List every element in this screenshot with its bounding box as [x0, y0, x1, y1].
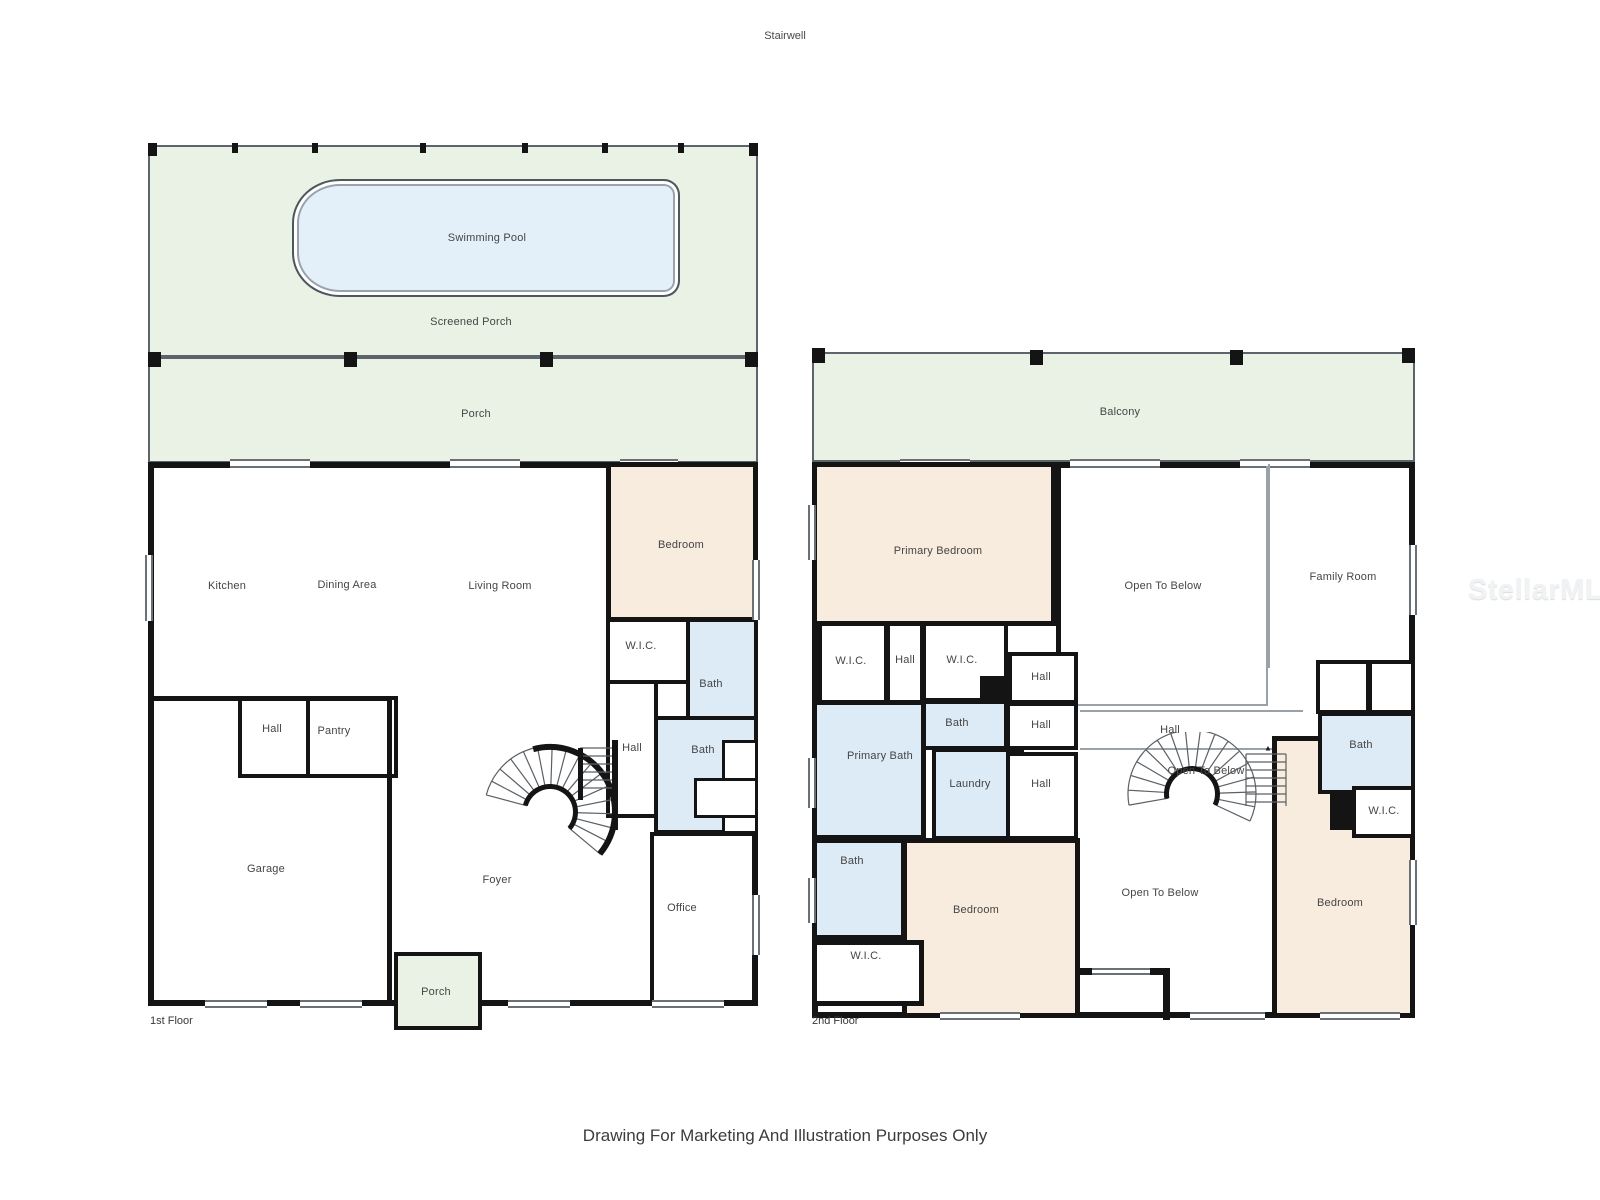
f1-hall-label: Hall [262, 723, 282, 735]
balcony-column [812, 348, 825, 363]
f2-hall-a-label: Hall [895, 654, 915, 666]
stair-wall [578, 748, 583, 800]
f1-pantry-label: Pantry [318, 725, 351, 737]
floorplan-canvas: Stairwell Swimming Pool Screened Porch P… [0, 0, 1600, 1200]
balcony-column [1402, 348, 1415, 363]
f2-bath-small-label: Bath [945, 717, 968, 729]
window [1320, 1012, 1400, 1020]
f2-wic-right-label: W.I.C. [1368, 805, 1399, 817]
f2-family-room-label: Family Room [1310, 571, 1377, 583]
f1-hall-bath-label: Hall [622, 742, 642, 754]
slider-opening [230, 459, 310, 468]
f1-toilet-compartment [694, 778, 758, 818]
f2-bath-left-label: Bath [840, 855, 863, 867]
f2-open-below-bottom-label: Open To Below [1121, 887, 1198, 899]
f1-garage-label: Garage [247, 863, 285, 875]
f2-bedroom-right-label: Bedroom [1317, 897, 1363, 909]
f2-floor-name: 2nd Floor [812, 1015, 858, 1027]
f1-office-label: Office [667, 902, 697, 914]
f2-toilet-compartment [1368, 660, 1415, 714]
screen-divider [522, 143, 528, 153]
porch-post [749, 143, 758, 156]
f2-bath-left-room [812, 838, 906, 940]
wall-segment [1163, 968, 1170, 1020]
f2-wic-b-label: W.I.C. [946, 654, 977, 666]
balcony-column [1030, 350, 1043, 365]
f1-kitchen-label: Kitchen [208, 580, 246, 592]
window [1092, 968, 1150, 975]
porch-column [344, 352, 357, 367]
balcony-column [1230, 350, 1243, 365]
stair-up-arrow: ▲ [1264, 744, 1272, 753]
f1-floor-name: 1st Floor [150, 1015, 193, 1027]
f1-screened-porch-label: Screened Porch [430, 316, 512, 328]
closet-block [1330, 790, 1354, 830]
screen-divider [602, 143, 608, 153]
window [145, 555, 153, 621]
f2-hall-d-label: Hall [1031, 778, 1051, 790]
f1-bath-upper-room [686, 618, 758, 722]
f2-open-below-top-label: Open To Below [1124, 580, 1201, 592]
f2-open-below-stairs-label: Open To Below [1167, 765, 1244, 777]
f2-bedroom-center-label: Bedroom [953, 904, 999, 916]
window [752, 560, 760, 620]
f1-bath-lower-label: Bath [691, 744, 714, 756]
porch-column [540, 352, 553, 367]
window [1409, 860, 1417, 925]
f2-toilet-compartment [1316, 660, 1370, 714]
stairwell-note: Stairwell [764, 30, 806, 42]
f1-porch-label: Porch [461, 408, 491, 420]
window [808, 878, 816, 923]
f2-primary-bath-room [812, 700, 926, 840]
window [300, 1000, 362, 1008]
f1-wic-label: W.I.C. [625, 640, 656, 652]
window [508, 1000, 570, 1008]
f2-bath-right-room [1318, 712, 1415, 794]
window [752, 895, 760, 955]
f1-garage-room [148, 696, 392, 1006]
f1-living-label: Living Room [468, 580, 531, 592]
f2-balcony-label: Balcony [1100, 406, 1141, 418]
f2-bath-right-label: Bath [1349, 739, 1372, 751]
f2-hall-c-label: Hall [1031, 719, 1051, 731]
f2-long-hall-label: Hall [1160, 724, 1180, 736]
disclaimer-text: Drawing For Marketing And Illustration P… [583, 1126, 987, 1146]
screen-divider [420, 143, 426, 153]
f2-hall-d-room [1006, 752, 1078, 840]
f1-front-porch-label: Porch [421, 986, 451, 998]
f1-porch-room [148, 357, 758, 463]
f2-primary-bedroom-room [812, 462, 1056, 626]
f2-family-room [1268, 464, 1415, 668]
f1-dining-label: Dining Area [317, 579, 376, 591]
window [652, 1000, 724, 1008]
watermark: StellarMLS [1468, 574, 1600, 607]
stair-wall [612, 740, 618, 830]
f2-bedroom-center-room [902, 838, 1080, 1018]
f2-curved-staircase [1112, 732, 1292, 877]
window [205, 1000, 267, 1008]
window [1190, 1012, 1265, 1020]
f2-wic-bottom-label: W.I.C. [850, 950, 881, 962]
porch-column [148, 352, 161, 367]
f2-hall-b-label: Hall [1031, 671, 1051, 683]
screen-divider [312, 143, 318, 153]
f2-primary-bath-label: Primary Bath [847, 750, 913, 762]
f1-bedroom-label: Bedroom [658, 539, 704, 551]
porch-post [148, 143, 157, 156]
f1-swimming-pool-label: Swimming Pool [448, 232, 526, 244]
f2-primary-bedroom-label: Primary Bedroom [894, 545, 983, 557]
screen-divider [232, 143, 238, 153]
f1-bath-upper-label: Bath [699, 678, 722, 690]
screen-divider [678, 143, 684, 153]
window [808, 505, 816, 560]
porch-column [745, 352, 758, 367]
window [940, 1012, 1020, 1020]
f2-laundry-label: Laundry [949, 778, 990, 790]
slider-opening [450, 459, 520, 468]
window [1409, 545, 1417, 615]
f1-office-room [650, 832, 758, 1006]
f1-foyer-label: Foyer [482, 874, 511, 886]
window [808, 758, 816, 808]
f2-wic-a-label: W.I.C. [835, 655, 866, 667]
